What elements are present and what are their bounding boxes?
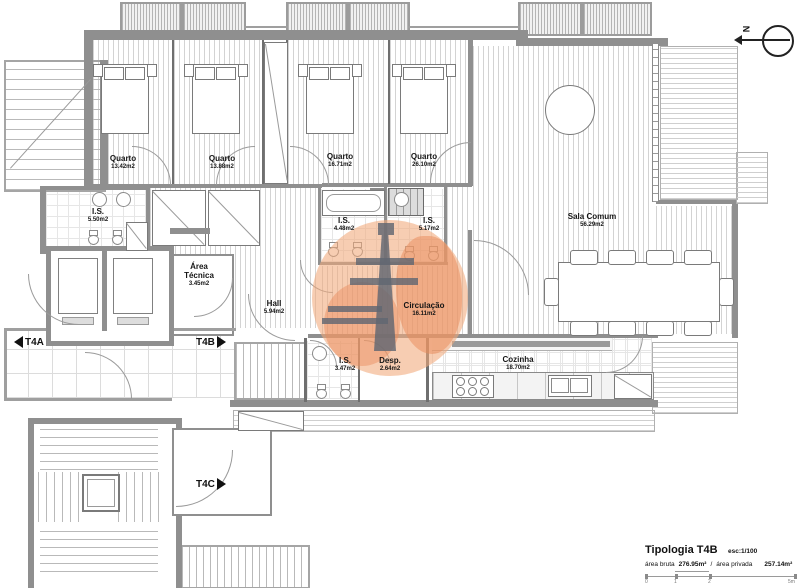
room-name: I.S. [334, 217, 354, 226]
label-quarto-3: Quarto 16.71m2 [327, 153, 353, 169]
nightstand-2b [238, 64, 248, 77]
kitchen-sink-bowl-2 [570, 378, 588, 393]
label-desp: Desp. 2.64m2 [379, 357, 401, 373]
room-area: 5.94m2 [264, 309, 284, 316]
scale-bar: 0 1 2 5m [645, 570, 797, 584]
nightstand-4b [446, 64, 456, 77]
room-name: Circulação [404, 302, 445, 311]
room-area: 2.64m2 [379, 366, 401, 373]
bidet-is347 [340, 384, 351, 399]
room-area: 3.45m2 [178, 281, 220, 288]
watermark-step-2 [322, 318, 388, 324]
watermark-stripe-1 [356, 258, 414, 265]
stair-flight-bottom [40, 524, 158, 572]
label-sala-comum: Sala Comum 56.29m2 [568, 213, 616, 229]
hall-shelf [170, 228, 210, 234]
watermark-lighthouse-top [378, 223, 394, 235]
stair-flight-top [40, 428, 158, 470]
stove-burner-6 [480, 387, 489, 396]
marker-t4b-label: T4B [196, 337, 215, 348]
marker-t4a: T4A [14, 336, 44, 348]
dining-chair-b4 [684, 321, 712, 336]
wall-left-wing [84, 30, 93, 188]
watermark-blob-right [396, 236, 462, 354]
bed-1-pillow-a [104, 67, 124, 80]
room-area: 5.17m2 [419, 226, 439, 233]
watermark-stripe-2 [350, 278, 418, 285]
label-is-448: I.S. 4.48m2 [334, 217, 354, 233]
stove-burner-3 [480, 377, 489, 386]
kitchen-sink-bowl-1 [551, 378, 569, 393]
bed-4-pillow-b [424, 67, 444, 80]
room-area: 26.10m2 [411, 162, 437, 169]
label-quarto-4: Quarto 26.10m2 [411, 153, 437, 169]
bed-3-pillow-b [330, 67, 350, 80]
room-area: 56.29m2 [568, 222, 616, 229]
stair-core [28, 418, 182, 588]
marker-t4a-label: T4A [25, 337, 44, 348]
sink-is347 [312, 346, 327, 361]
elevator-sill-2 [117, 317, 149, 325]
label-hall: Hall 5.94m2 [264, 300, 284, 316]
room-name: Desp. [379, 357, 401, 366]
bed-4-pillow-a [403, 67, 423, 80]
label-cozinha: Cozinha 18.70m2 [502, 356, 533, 372]
dining-chair-t4 [684, 250, 712, 265]
north-arrow: N [734, 20, 798, 64]
scale-bar-bracket [675, 571, 709, 572]
dining-chair-b3 [646, 321, 674, 336]
label-is-550: I.S. 5.50m2 [88, 208, 108, 224]
room-name: Quarto [209, 155, 235, 164]
plan-scale: esc:1/100 [728, 548, 757, 555]
stair-core-landing-inner [87, 479, 115, 507]
wall-is-left [318, 186, 321, 265]
north-circle-icon [762, 25, 794, 57]
room-name: I.S. [88, 208, 108, 217]
area-row: área bruta 276.95m² / área privada 257.1… [645, 561, 798, 568]
wall-sala-step [656, 200, 736, 204]
kitchen-hood [452, 341, 610, 347]
label-quarto-2: Quarto 13.88m2 [209, 155, 235, 171]
arrow-right-icon [217, 478, 226, 490]
room-name: Hall [264, 300, 284, 309]
ramp-bottom [180, 545, 310, 588]
room-area: 4.48m2 [334, 226, 354, 233]
stove-burner-2 [468, 377, 477, 386]
bed-2-pillow-b [216, 67, 236, 80]
marker-t4c: T4C [196, 478, 226, 490]
room-name: I.S. [335, 357, 355, 366]
dining-chair-t1 [570, 250, 598, 265]
scale-num-0: 0 [645, 579, 648, 585]
door-arc-vestibule [28, 274, 79, 325]
wall-corridor-left [4, 328, 7, 401]
watermark-logo [312, 220, 468, 376]
room-area: 16.11m2 [404, 311, 445, 318]
wall-top-bedrooms [84, 30, 528, 40]
bathtub-inner [326, 194, 381, 212]
label-is-347: I.S. 3.47m2 [335, 357, 355, 373]
room-name: I.S. [419, 217, 439, 226]
scale-num-1: 1 [674, 579, 677, 585]
stair-flight-right [118, 472, 162, 522]
nightstand-3b [352, 64, 362, 77]
nightstand-1b [147, 64, 157, 77]
toilet-is550 [88, 230, 99, 245]
scale-bar-line [645, 576, 797, 577]
scale-num-2: 2 [708, 579, 711, 585]
room-name: Área Técnica [178, 263, 220, 281]
area-separator: / [710, 561, 712, 568]
bed-1-pillow-b [125, 67, 145, 80]
elevator-cab-2 [113, 258, 153, 314]
north-label: N [741, 26, 751, 33]
wall-top-sala [516, 38, 668, 46]
room-name: Quarto [110, 155, 136, 164]
watermark-step-1 [328, 306, 382, 312]
room-area: 16.71m2 [327, 162, 353, 169]
area-bruta-label: área bruta [645, 561, 675, 568]
wall-bottom-exterior [230, 400, 658, 407]
area-bruta-value: 276.95m² [679, 561, 707, 568]
stair-flight-left [38, 472, 82, 522]
wall-bedrooms-bottom-left [84, 184, 322, 188]
room-name: Quarto [327, 153, 353, 162]
room-name: Quarto [411, 153, 437, 162]
dining-chair-b2 [608, 321, 636, 336]
window-sala-right [652, 44, 659, 202]
room-area: 5.50m2 [88, 217, 108, 224]
stove-burner-5 [468, 387, 477, 396]
title-block: Tipologia T4B esc:1/100 área bruta 276.9… [645, 540, 798, 568]
wall-q1-q2 [172, 40, 174, 184]
round-table [545, 85, 595, 135]
nightstand-2a [184, 64, 194, 77]
railing-2 [408, 26, 520, 28]
nightstand-1a [93, 64, 103, 77]
marker-t4c-label: T4C [196, 479, 215, 490]
railing-1 [244, 26, 288, 28]
room-name: Cozinha [502, 356, 533, 365]
plan-title: Tipologia T4B [645, 544, 718, 556]
bidet-is550 [112, 230, 123, 245]
sink-is550-b [116, 192, 131, 207]
label-quarto-1: Quarto 13.42m2 [110, 155, 136, 171]
marker-t4b: T4B [196, 336, 226, 348]
louver-box-6 [582, 2, 652, 36]
wall-is550-left [40, 186, 46, 254]
nightstand-4a [392, 64, 402, 77]
wall-is347-left [304, 338, 307, 402]
stove-burner-1 [456, 377, 465, 386]
room-area: 13.88m2 [209, 164, 235, 171]
area-privada-value: 257.14m² [764, 561, 792, 568]
sink-is550-a [92, 192, 107, 207]
terrace-right [660, 46, 738, 200]
label-circulacao: Circulação 16.11m2 [404, 302, 445, 318]
wall-bedrooms-bottom-right [322, 183, 472, 187]
stair-core-landing [82, 474, 120, 512]
scale-num-5m: 5m [788, 579, 795, 585]
sink-is517 [394, 192, 409, 207]
dining-chair-t2 [608, 250, 636, 265]
north-arrowhead-icon [734, 35, 742, 45]
dining-chair-end-l [544, 278, 559, 306]
wall-sala-left-lower [468, 230, 472, 338]
dining-chair-end-r [719, 278, 734, 306]
nightstand-3a [298, 64, 308, 77]
wall-q3-q4 [388, 40, 390, 184]
arrow-left-icon [14, 336, 23, 348]
room-name: Sala Comum [568, 213, 616, 222]
room-area: 18.70m2 [502, 365, 533, 372]
dining-table [558, 262, 720, 322]
label-area-tecnica: Área Técnica 3.45m2 [178, 263, 220, 288]
terrace-right-step [736, 152, 768, 204]
label-is-517: I.S. 5.17m2 [419, 217, 439, 233]
bathtub-is448 [322, 190, 385, 216]
dining-chair-b1 [570, 321, 598, 336]
title-row: Tipologia T4B esc:1/100 [645, 540, 798, 558]
room-area: 13.42m2 [110, 164, 136, 171]
bed-3-pillow-a [309, 67, 329, 80]
bed-2-pillow-a [195, 67, 215, 80]
arrow-right-icon [217, 336, 226, 348]
area-privada-label: área privada [716, 561, 752, 568]
room-area: 3.47m2 [335, 366, 355, 373]
wall-sala-right-lower [732, 204, 738, 338]
toilet-is347 [316, 384, 327, 399]
dining-chair-t3 [646, 250, 674, 265]
stair-to-balcony [234, 342, 306, 400]
elevator-divider [102, 251, 107, 331]
terrace-bottom-right [652, 342, 738, 414]
floor-plan: Quarto 13.42m2 Quarto 13.88m2 Quarto 16.… [0, 0, 800, 588]
stove-burner-4 [456, 387, 465, 396]
